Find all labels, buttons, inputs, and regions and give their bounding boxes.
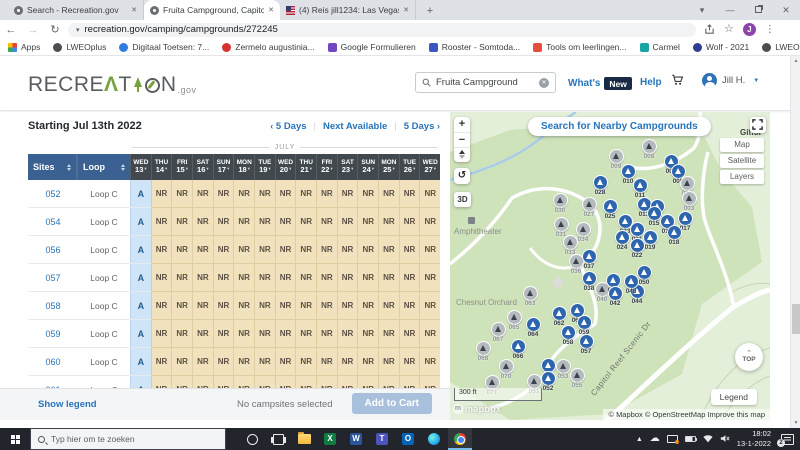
- availability-cell[interactable]: NR: [171, 208, 192, 236]
- bookmark-item[interactable]: Wolf - 2021: [693, 42, 749, 52]
- campsite-number-label: 058: [558, 339, 578, 346]
- availability-cell[interactable]: NR: [399, 292, 420, 320]
- availability-cell[interactable]: NR: [337, 292, 358, 320]
- loop-column-header[interactable]: Loop: [78, 154, 130, 180]
- availability-cell[interactable]: NR: [316, 320, 337, 348]
- table-row: 052 Loop C ANRNRNRNRNRNRNRNRNRNRNRNRNRNR: [28, 180, 440, 208]
- availability-cell[interactable]: NR: [233, 236, 254, 264]
- recreation-gov-logo[interactable]: RECREΛTN.gov: [28, 73, 197, 97]
- site-link[interactable]: 060: [28, 348, 78, 375]
- availability-cell[interactable]: NR: [254, 180, 275, 208]
- campsite-number-label: 028: [590, 189, 610, 196]
- tent-icon: [489, 379, 495, 385]
- availability-cell[interactable]: NR: [213, 208, 234, 236]
- availability-cell[interactable]: NR: [151, 180, 172, 208]
- browser-tab[interactable]: Fruita Campground, Capitol Reef ✕: [144, 0, 280, 20]
- campsite-marker[interactable]: 011: [633, 178, 648, 193]
- campground-map[interactable]: GifforAmphitheaterChesnut OrchardCapitol…: [450, 112, 770, 420]
- battery-icon[interactable]: [685, 436, 696, 442]
- network-icon[interactable]: [703, 430, 713, 448]
- caret-down-icon: ▾: [206, 166, 208, 171]
- availability-cell[interactable]: NR: [192, 236, 213, 264]
- task-view-taskbar-icon[interactable]: [266, 428, 290, 450]
- tent-icon: [646, 143, 652, 149]
- campsite-number-label: 027: [579, 211, 599, 218]
- site-link[interactable]: 054: [28, 208, 78, 235]
- campsite-marker[interactable]: 068: [476, 341, 491, 356]
- availability-cell[interactable]: NR: [357, 180, 378, 208]
- tent-icon: [634, 242, 640, 248]
- onedrive-icon[interactable]: ☁: [650, 434, 660, 444]
- caret-down-icon: ▾: [330, 166, 332, 171]
- tent-icon: [610, 277, 616, 283]
- date-column-header[interactable]: THU 14▾: [151, 154, 172, 180]
- account-menu[interactable]: Jill H. ▼: [702, 73, 759, 88]
- amphitheater-icon: [468, 217, 475, 224]
- map-attribution[interactable]: © Mapbox © OpenStreetMap Improve this ma…: [603, 409, 770, 420]
- availability-cell[interactable]: NR: [399, 264, 420, 292]
- search-nearby-campgrounds-button[interactable]: Search for Nearby Campgrounds: [528, 117, 711, 136]
- campsite-number-label: 022: [627, 252, 647, 259]
- caret-down-icon: ▾: [434, 166, 436, 171]
- availability-cell[interactable]: A: [130, 292, 151, 319]
- availability-cell[interactable]: NR: [171, 264, 192, 292]
- close-window-button[interactable]: ✕: [772, 5, 800, 16]
- availability-cell[interactable]: NR: [295, 292, 316, 320]
- caret-down-icon: ▾: [144, 166, 146, 171]
- campsite-marker[interactable]: 058: [561, 325, 576, 340]
- date-column-header[interactable]: TUE 26▾: [399, 154, 420, 180]
- tray-chevron-icon[interactable]: ▲: [636, 436, 643, 443]
- volume-muted-icon[interactable]: [720, 430, 730, 448]
- tab-close-icon[interactable]: ✕: [403, 6, 409, 14]
- availability-cell[interactable]: NR: [419, 320, 440, 348]
- availability-cell[interactable]: NR: [233, 348, 254, 376]
- availability-cell[interactable]: NR: [171, 348, 192, 376]
- campsite-marker[interactable]: 065: [507, 310, 522, 325]
- campsite-marker[interactable]: 052: [541, 371, 556, 386]
- bookmark-item[interactable]: Tools om leerlingen...: [533, 42, 626, 52]
- tent-icon: [586, 201, 592, 207]
- date-column-header[interactable]: SUN 17▾: [213, 154, 234, 180]
- campsite-marker[interactable]: 008: [642, 139, 657, 154]
- tent-icon: [641, 201, 647, 207]
- campsite-marker[interactable]: 031: [554, 217, 569, 232]
- bookmark-item[interactable]: Zermelo augustinia...: [222, 42, 314, 52]
- availability-cell[interactable]: NR: [192, 208, 213, 236]
- browser-tab[interactable]: Search - Recreation.gov ✕: [8, 0, 144, 20]
- taskbar-clock[interactable]: 18:0213-1-2022: [737, 429, 771, 449]
- availability-cell[interactable]: NR: [275, 264, 296, 292]
- recreation-favicon: [14, 6, 23, 15]
- availability-cell[interactable]: NR: [233, 208, 254, 236]
- new-badge: New: [604, 77, 631, 90]
- site-icon: [533, 43, 542, 52]
- availability-cell[interactable]: NR: [316, 264, 337, 292]
- availability-cell[interactable]: A: [130, 320, 151, 347]
- date-column-header[interactable]: SUN 24▾: [357, 154, 378, 180]
- campsite-marker[interactable]: 070: [499, 359, 514, 374]
- campsite-marker[interactable]: 033: [563, 235, 578, 250]
- availability-cell[interactable]: NR: [254, 320, 275, 348]
- availability-cell[interactable]: NR: [399, 348, 420, 376]
- reload-button[interactable]: ↻: [44, 23, 66, 36]
- availability-cell[interactable]: NR: [337, 208, 358, 236]
- availability-cell[interactable]: NR: [295, 264, 316, 292]
- availability-cell[interactable]: A: [130, 264, 151, 291]
- back-button[interactable]: ←: [0, 24, 22, 36]
- zoom-out-button[interactable]: −: [454, 132, 470, 147]
- caret-down-icon: ▾: [289, 166, 291, 171]
- availability-cell[interactable]: NR: [233, 320, 254, 348]
- availability-cell[interactable]: NR: [399, 208, 420, 236]
- site-link[interactable]: 056: [28, 236, 78, 263]
- map-style-layers-button[interactable]: Layers: [720, 170, 764, 184]
- start-button[interactable]: [0, 428, 30, 450]
- availability-cell[interactable]: NR: [357, 292, 378, 320]
- availability-cell[interactable]: NR: [254, 348, 275, 376]
- availability-cell[interactable]: NR: [419, 208, 440, 236]
- availability-cell[interactable]: NR: [213, 264, 234, 292]
- previous-5-days-button[interactable]: ‹ 5 Days: [270, 121, 306, 132]
- edge-taskbar-icon[interactable]: [422, 428, 446, 450]
- tent-icon: [607, 203, 613, 209]
- availability-cell[interactable]: NR: [151, 292, 172, 320]
- availability-cell[interactable]: NR: [233, 292, 254, 320]
- site-link[interactable]: 052: [28, 180, 78, 207]
- availability-cell[interactable]: NR: [233, 264, 254, 292]
- availability-cell[interactable]: NR: [151, 348, 172, 376]
- taskbar-search-input[interactable]: Typ hier om te zoeken: [30, 428, 226, 450]
- whats-new-link[interactable]: What's New: [568, 77, 632, 90]
- fullscreen-button[interactable]: [750, 117, 766, 133]
- campsite-marker[interactable]: 059: [577, 315, 592, 330]
- availability-cell[interactable]: A: [130, 236, 151, 263]
- tent-icon: [545, 375, 551, 381]
- availability-panel: Starting Jul 13th 2022 ‹ 5 Days | Next A…: [0, 112, 450, 420]
- bookmark-item[interactable]: LWEOplus: [53, 42, 106, 52]
- excel-taskbar-icon[interactable]: X: [318, 428, 342, 450]
- availability-cell[interactable]: NR: [337, 264, 358, 292]
- add-to-cart-button[interactable]: Add to Cart: [352, 393, 432, 414]
- availability-cell[interactable]: NR: [316, 348, 337, 376]
- availability-cell[interactable]: NR: [192, 348, 213, 376]
- cart-icon[interactable]: [670, 73, 685, 92]
- availability-cell[interactable]: NR: [213, 348, 234, 376]
- availability-cell[interactable]: NR: [213, 320, 234, 348]
- mapbox-logo[interactable]: m mapbox: [453, 404, 501, 414]
- availability-cell[interactable]: NR: [337, 320, 358, 348]
- tent-icon: [664, 218, 670, 224]
- campsite-number-label: 066: [508, 353, 528, 360]
- availability-cell[interactable]: NR: [357, 208, 378, 236]
- campsite-marker[interactable]: 066: [511, 339, 526, 354]
- availability-cell[interactable]: NR: [151, 264, 172, 292]
- availability-cell[interactable]: NR: [337, 180, 358, 208]
- scroll-up-arrow[interactable]: ▲: [791, 58, 800, 64]
- campsite-marker[interactable]: 010: [621, 164, 636, 179]
- date-column-header[interactable]: SAT 16▾: [192, 154, 213, 180]
- availability-cell[interactable]: NR: [295, 348, 316, 376]
- map-scale-bar: 300 ft: [454, 388, 542, 401]
- availability-cell[interactable]: A: [130, 348, 151, 375]
- campsite-marker[interactable]: 038: [582, 271, 597, 286]
- availability-cell[interactable]: NR: [233, 180, 254, 208]
- site-icon: [640, 43, 649, 52]
- loop-label: Loop C: [78, 208, 130, 235]
- availability-cell[interactable]: NR: [295, 320, 316, 348]
- availability-cell[interactable]: NR: [357, 236, 378, 264]
- clear-search-icon[interactable]: ✕: [539, 78, 549, 88]
- notification-center-icon[interactable]: 2: [781, 434, 794, 445]
- availability-cell[interactable]: NR: [295, 236, 316, 264]
- availability-cell[interactable]: NR: [275, 180, 296, 208]
- address-bar[interactable]: ▾ recreation.gov/camping/campgrounds/272…: [68, 23, 696, 37]
- campground-search-input[interactable]: Fruita Campground ✕: [415, 72, 556, 93]
- availability-cell[interactable]: NR: [419, 264, 440, 292]
- campsite-marker[interactable]: 009: [609, 149, 624, 164]
- pitch-toggle-button[interactable]: [454, 147, 470, 162]
- campsite-marker[interactable]: 055: [570, 368, 585, 383]
- availability-cell[interactable]: NR: [357, 320, 378, 348]
- campsite-marker[interactable]: 028: [593, 175, 608, 190]
- date-column-header[interactable]: TUE 19▾: [254, 154, 275, 180]
- tent-icon: [634, 226, 640, 232]
- campsite-marker[interactable]: 053: [556, 359, 571, 374]
- campsite-marker[interactable]: 050: [637, 265, 652, 280]
- availability-cell[interactable]: NR: [254, 236, 275, 264]
- availability-cell[interactable]: NR: [275, 236, 296, 264]
- minimize-button[interactable]: —: [716, 5, 744, 15]
- campsite-number-label: 030: [550, 207, 570, 214]
- help-link[interactable]: Help: [640, 77, 662, 88]
- availability-cell[interactable]: NR: [378, 348, 399, 376]
- browser-profile-avatar[interactable]: J: [743, 23, 756, 36]
- availability-cell[interactable]: NR: [399, 236, 420, 264]
- tent-icon: [651, 210, 657, 216]
- campsite-number-label: 065: [504, 324, 524, 331]
- availability-cell[interactable]: NR: [275, 292, 296, 320]
- campsite-marker[interactable]: 027: [582, 197, 597, 212]
- date-column-header[interactable]: WED 13▾: [130, 154, 151, 180]
- site-link[interactable]: 057: [28, 264, 78, 291]
- availability-cell[interactable]: NR: [357, 264, 378, 292]
- campsite-marker[interactable]: 004: [680, 176, 695, 191]
- availability-cell[interactable]: NR: [171, 320, 192, 348]
- campsite-marker[interactable]: 018: [667, 225, 682, 240]
- availability-cell[interactable]: NR: [213, 236, 234, 264]
- loop-label: Loop C: [78, 236, 130, 263]
- forward-button[interactable]: →: [22, 24, 44, 36]
- 3d-toggle-button[interactable]: 3D: [454, 192, 471, 207]
- tent-icon: [619, 234, 625, 240]
- availability-cell[interactable]: NR: [151, 236, 172, 264]
- availability-cell[interactable]: NR: [378, 292, 399, 320]
- chrome-taskbar-icon[interactable]: [448, 428, 472, 450]
- campsite-marker[interactable]: 062: [552, 306, 567, 321]
- bookmark-item[interactable]: LWEO Economie: [762, 42, 800, 52]
- campsite-marker[interactable]: 003: [682, 191, 697, 206]
- sites-column-header[interactable]: Sites: [28, 154, 78, 180]
- month-band: JULY: [132, 142, 438, 152]
- tent-icon: [556, 310, 562, 316]
- availability-cell[interactable]: NR: [378, 320, 399, 348]
- next-available-button[interactable]: Next Available: [323, 121, 387, 132]
- site-link[interactable]: 059: [28, 320, 78, 347]
- campsite-marker[interactable]: 063: [523, 286, 538, 301]
- scroll-down-arrow[interactable]: ▼: [791, 420, 800, 426]
- zoom-in-button[interactable]: +: [454, 117, 470, 132]
- date-column-header[interactable]: FRI 15▾: [171, 154, 192, 180]
- availability-cell[interactable]: NR: [171, 236, 192, 264]
- availability-cell[interactable]: NR: [171, 180, 192, 208]
- campsite-marker[interactable]: 051: [527, 374, 542, 389]
- tent-icon: [597, 179, 603, 185]
- new-tab-button[interactable]: +: [422, 4, 438, 20]
- tab-search-chevron-icon[interactable]: ▾: [688, 5, 716, 16]
- show-legend-link[interactable]: Show legend: [38, 399, 97, 410]
- maximize-button[interactable]: [744, 5, 772, 15]
- bookmarks-bar: Apps LWEOplus Digitaal Toetsen: 7... Zer…: [0, 39, 800, 56]
- cortana-taskbar-icon[interactable]: [240, 428, 264, 450]
- campsite-marker[interactable]: 017: [678, 211, 693, 226]
- availability-cell[interactable]: NR: [192, 180, 213, 208]
- site-link[interactable]: 058: [28, 292, 78, 319]
- date-column-header[interactable]: MON 25▾: [378, 154, 399, 180]
- tent-icon: [586, 253, 592, 259]
- availability-cell[interactable]: NR: [419, 180, 440, 208]
- availability-cell[interactable]: NR: [151, 208, 172, 236]
- scrollbar-thumb[interactable]: [792, 304, 800, 334]
- availability-cell[interactable]: NR: [192, 320, 213, 348]
- browser-tab[interactable]: (4) Reis jill1234: Las Vegas- Denv ✕: [280, 0, 416, 20]
- availability-cell[interactable]: NR: [399, 180, 420, 208]
- availability-cell[interactable]: NR: [357, 348, 378, 376]
- availability-cell[interactable]: NR: [378, 236, 399, 264]
- share-icon[interactable]: [704, 24, 715, 35]
- campsite-marker[interactable]: 025: [603, 199, 618, 214]
- availability-cell[interactable]: NR: [192, 292, 213, 320]
- campsite-marker[interactable]: 034: [576, 222, 591, 237]
- availability-cell[interactable]: NR: [337, 236, 358, 264]
- bookmark-item[interactable]: Apps: [8, 42, 40, 52]
- map-style-satellite-button[interactable]: Satellite: [720, 154, 764, 168]
- teams-taskbar-icon[interactable]: T: [370, 428, 394, 450]
- availability-cell[interactable]: NR: [316, 180, 337, 208]
- file-explorer-taskbar-icon[interactable]: [292, 428, 316, 450]
- tent-icon: [527, 290, 533, 296]
- bookmark-item[interactable]: Google Formulieren: [328, 42, 416, 52]
- outlook-taskbar-icon[interactable]: O: [396, 428, 420, 450]
- site-info-icon[interactable]: ▾: [76, 26, 80, 34]
- availability-cell[interactable]: NR: [378, 180, 399, 208]
- compass-reset-button[interactable]: ↺: [454, 168, 470, 184]
- availability-cell[interactable]: NR: [275, 320, 296, 348]
- availability-cell[interactable]: A: [130, 180, 151, 207]
- date-range-title: Starting Jul 13th 2022: [28, 120, 142, 132]
- tent-icon: [503, 363, 509, 369]
- word-taskbar-icon[interactable]: W: [344, 428, 368, 450]
- tab-title: (4) Reis jill1234: Las Vegas- Denv: [299, 5, 399, 15]
- availability-cell[interactable]: NR: [254, 292, 275, 320]
- availability-cell[interactable]: NR: [192, 264, 213, 292]
- date-column-header[interactable]: MON 18▾: [233, 154, 254, 180]
- availability-footer: Show legend No campsites selected Add to…: [0, 388, 450, 420]
- us-flag-favicon: [286, 6, 295, 15]
- availability-cell[interactable]: NR: [337, 348, 358, 376]
- campsite-marker[interactable]: 037: [582, 249, 597, 264]
- browser-menu-icon[interactable]: ⋮: [765, 24, 775, 35]
- bookmark-item[interactable]: Rooster - Somtoda...: [429, 42, 520, 52]
- availability-cell[interactable]: NR: [254, 264, 275, 292]
- availability-cell[interactable]: NR: [295, 208, 316, 236]
- date-column-header[interactable]: FRI 22▾: [316, 154, 337, 180]
- availability-cell[interactable]: NR: [316, 236, 337, 264]
- availability-cell[interactable]: NR: [399, 320, 420, 348]
- tab-title: Fruita Campground, Capitol Reef: [163, 5, 264, 15]
- bookmark-item[interactable]: Digitaal Toetsen: 7...: [119, 42, 209, 52]
- bookmark-item[interactable]: Carmel: [640, 42, 680, 52]
- tent-icon: [628, 278, 634, 284]
- campsite-marker[interactable]: 022: [630, 238, 645, 253]
- date-column-header[interactable]: WED 27▾: [419, 154, 440, 180]
- availability-cell[interactable]: NR: [295, 180, 316, 208]
- availability-cell[interactable]: NR: [151, 320, 172, 348]
- availability-cell[interactable]: NR: [378, 208, 399, 236]
- availability-cell[interactable]: NR: [378, 264, 399, 292]
- availability-cell[interactable]: NR: [275, 348, 296, 376]
- date-column-header[interactable]: WED 20▾: [275, 154, 296, 180]
- availability-cell[interactable]: A: [130, 208, 151, 235]
- page-scrollbar[interactable]: ▲ ▼: [790, 56, 800, 428]
- next-5-days-button[interactable]: 5 Days ›: [404, 121, 440, 132]
- availability-cell[interactable]: NR: [213, 292, 234, 320]
- availability-cell[interactable]: NR: [419, 348, 440, 376]
- availability-cell[interactable]: NR: [275, 208, 296, 236]
- map-style-map-button[interactable]: Map: [720, 138, 764, 152]
- tab-close-icon[interactable]: ✕: [268, 6, 274, 14]
- availability-cell[interactable]: NR: [254, 208, 275, 236]
- tree-icon: [133, 77, 143, 93]
- campsite-number-label: 050: [634, 279, 654, 286]
- campsite-marker[interactable]: 019: [643, 230, 658, 245]
- availability-cell[interactable]: NR: [316, 208, 337, 236]
- campsite-marker[interactable]: 067: [491, 322, 506, 337]
- campsite-marker[interactable]: 064: [526, 317, 541, 332]
- campsite-marker[interactable]: 024: [615, 230, 630, 245]
- tab-close-icon[interactable]: ✕: [131, 6, 137, 14]
- availability-cell[interactable]: NR: [171, 292, 192, 320]
- availability-cell[interactable]: NR: [316, 292, 337, 320]
- screenshare-icon[interactable]: [667, 435, 678, 443]
- availability-cell[interactable]: NR: [213, 180, 234, 208]
- date-column-header[interactable]: SAT 23▾: [337, 154, 358, 180]
- map-zoom-controls: + −: [454, 117, 470, 162]
- date-column-header[interactable]: THU 21▾: [295, 154, 316, 180]
- availability-cell[interactable]: NR: [419, 292, 440, 320]
- tent-icon: [480, 345, 486, 351]
- campsite-marker[interactable]: 057: [579, 334, 594, 349]
- availability-cell[interactable]: NR: [419, 236, 440, 264]
- tent-icon: [557, 197, 563, 203]
- campsite-marker[interactable]: 030: [553, 193, 568, 208]
- tent-icon: [515, 343, 521, 349]
- bookmark-star-icon[interactable]: ☆: [724, 24, 734, 35]
- campsite-number-label: 067: [488, 336, 508, 343]
- map-legend-button[interactable]: Legend: [711, 389, 757, 405]
- caret-down-icon: ▾: [227, 166, 229, 171]
- back-to-top-button[interactable]: ⌃ TOP: [735, 343, 763, 371]
